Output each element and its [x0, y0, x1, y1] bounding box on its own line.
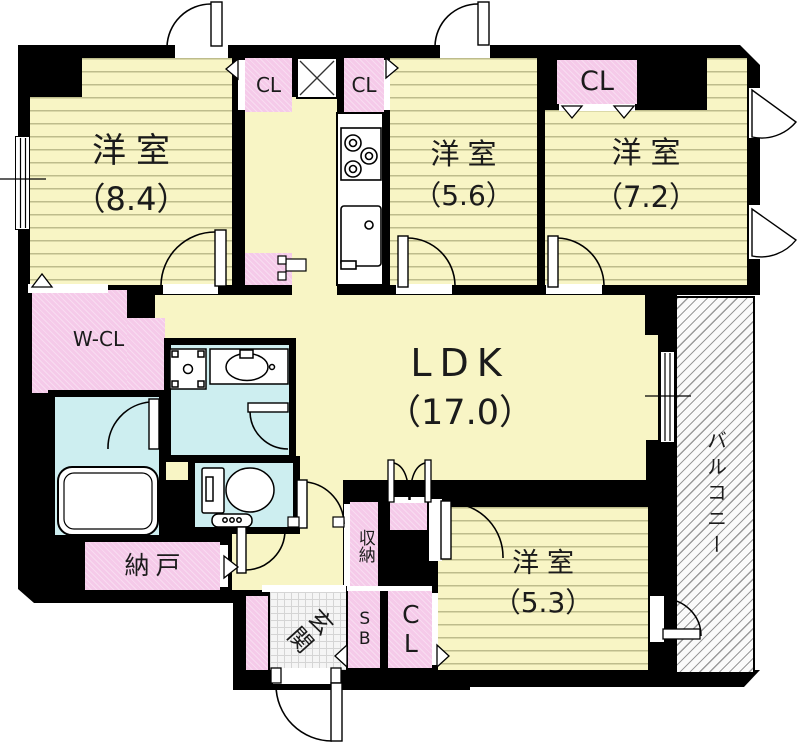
washroom — [164, 338, 296, 462]
door-bedroom56-top — [435, 2, 489, 46]
bedroom-56-name: 洋室 — [430, 138, 504, 171]
label-shoe-box: SB — [348, 592, 380, 666]
door-strip-cl2 — [384, 60, 390, 110]
cl2-text: CL — [351, 74, 376, 97]
label-entrance: 玄関 — [270, 590, 346, 668]
bathroom — [48, 390, 166, 542]
doorway-bedroom72-window1 — [749, 88, 760, 138]
wall-corner-notch — [18, 45, 82, 97]
corridor-north — [245, 112, 292, 253]
label-storage-room: 納戸 — [85, 544, 220, 588]
label-bedroom-56: 洋室 （5.6） — [390, 115, 537, 235]
doorway-bedroom84-hall — [163, 284, 218, 294]
label-bedroom-72: 洋室 （7.2） — [545, 118, 747, 233]
ldk-area: （17.0） — [386, 393, 534, 433]
label-ldk: LDK （17.0） — [330, 325, 590, 450]
label-cl3: CL — [557, 60, 637, 104]
bedroom-56-area: （5.6） — [413, 180, 514, 212]
balcony-text: バルコニー — [704, 430, 727, 560]
sill-double-closet — [390, 497, 427, 503]
cl4-text: CL — [396, 600, 425, 658]
kitchen-counter — [336, 112, 384, 286]
bedroom-72-area: （7.2） — [594, 181, 698, 214]
label-bedroom-84: 洋室 （8.4） — [30, 115, 232, 235]
toilet-room — [188, 456, 300, 534]
door-strip-cl1 — [238, 60, 245, 110]
doorway-bedroom72-ldk — [546, 284, 602, 294]
window-ldk-balcony — [660, 351, 675, 443]
cl1-text: CL — [256, 74, 281, 97]
bedroom-53-area: （5.3） — [493, 587, 594, 619]
doorway-bedroom72-window2 — [749, 205, 760, 259]
nando-text: 納戸 — [124, 552, 186, 581]
sb-text: SB — [354, 609, 374, 649]
wall-step-ldk-topright — [645, 295, 660, 335]
door-bedroom84-top — [167, 2, 222, 47]
doorway-bedroom84-top — [175, 45, 228, 58]
balcony-label: バルコニー — [694, 388, 736, 602]
ldk-name: LDK — [410, 342, 509, 386]
label-walk-in-closet: W-CL — [32, 322, 165, 356]
door-strip-nando — [220, 545, 228, 587]
genkan-text: 玄関 — [279, 601, 338, 658]
kitchen-lower-cabinet — [245, 253, 292, 285]
doorway-bedroom56-ldk — [396, 284, 452, 294]
doorway-bedroom56-top — [440, 45, 490, 58]
label-bedroom-53: 洋室 （5.3） — [438, 528, 648, 640]
pipe-space — [296, 57, 338, 99]
entrance-side-strip — [246, 596, 268, 670]
shuno-text: 収納 — [354, 529, 374, 563]
kitchen-aisle — [292, 97, 337, 297]
double-door-closet — [390, 502, 427, 530]
window-left — [15, 136, 30, 230]
doorway-balcony-small — [650, 596, 664, 642]
bedroom-84-area: （8.4） — [74, 181, 189, 218]
bedroom-72-name: 洋室 — [612, 137, 690, 172]
bedroom-53-name: 洋室 — [512, 548, 582, 579]
doorway-entrance — [273, 668, 333, 684]
bedroom-84-name: 洋室 — [92, 132, 180, 171]
label-storage-shuno: 収納 — [350, 504, 378, 588]
wall-step-below-window — [646, 440, 677, 482]
cl3-text: CL — [580, 66, 614, 97]
label-cl2: CL — [344, 58, 384, 112]
wcl-text: W-CL — [73, 328, 124, 351]
floor-plan: バルコニー — [0, 0, 800, 743]
room-bedroom-72-upper — [707, 58, 747, 112]
opening-walk-in-closet — [28, 284, 108, 293]
door-strip-cl3 — [559, 104, 635, 111]
label-cl1: CL — [245, 58, 292, 112]
label-cl4: CL — [388, 592, 432, 666]
